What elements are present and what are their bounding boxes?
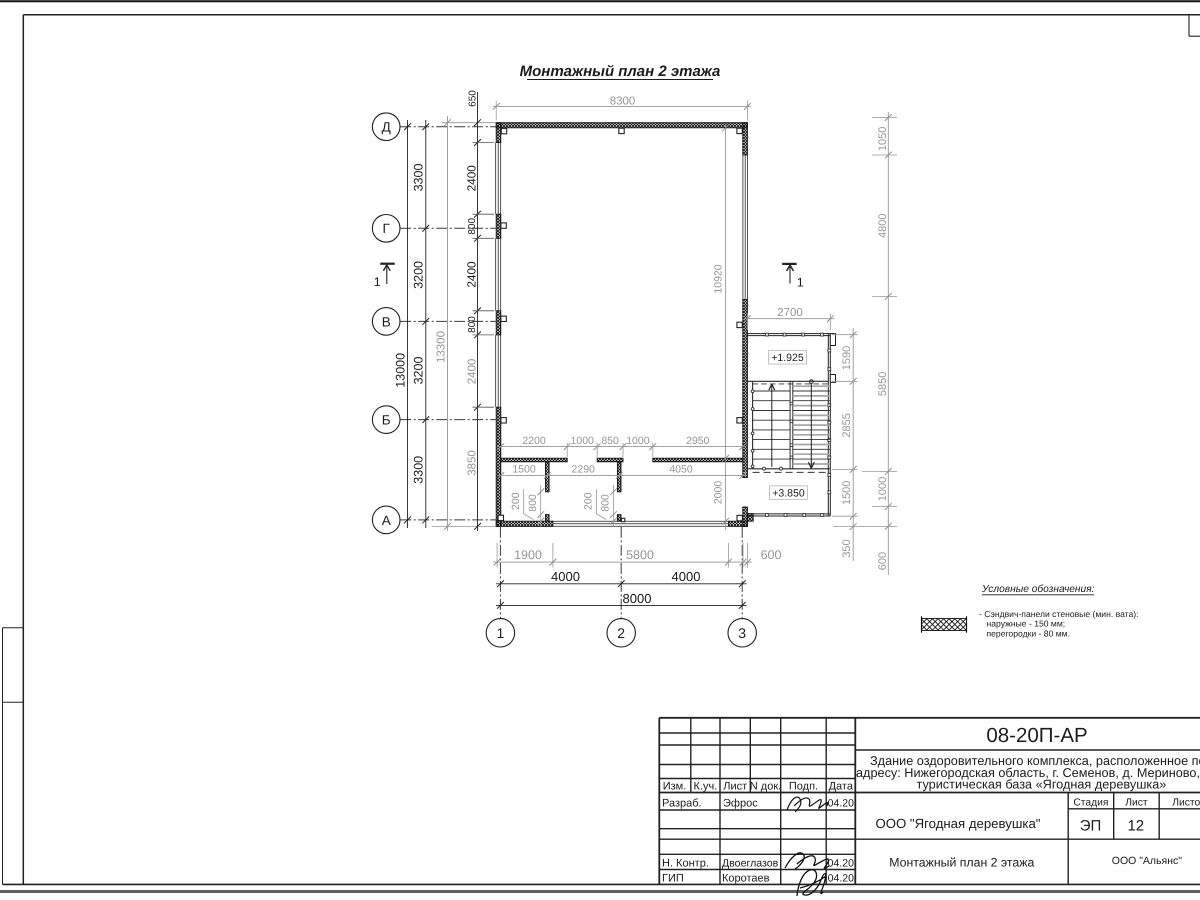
- svg-text:2200: 2200: [522, 435, 546, 447]
- svg-text:1000: 1000: [877, 477, 889, 501]
- svg-text:1050: 1050: [877, 127, 889, 151]
- svg-text:+3.850: +3.850: [772, 487, 805, 499]
- svg-text:08-20П-АР: 08-20П-АР: [986, 724, 1087, 747]
- svg-text:Разраб.: Разраб.: [662, 797, 702, 809]
- svg-text:200: 200: [510, 492, 522, 510]
- svg-text:5850: 5850: [877, 372, 889, 396]
- svg-text:N док.: N док.: [750, 781, 781, 793]
- svg-text:650: 650: [467, 90, 478, 107]
- svg-text:Н. Контр.: Н. Контр.: [662, 857, 709, 869]
- svg-text:3: 3: [738, 625, 746, 641]
- svg-text:800: 800: [467, 218, 478, 235]
- svg-text:2400: 2400: [466, 359, 478, 385]
- svg-text:+1.925: +1.925: [771, 352, 804, 364]
- svg-text:3850: 3850: [466, 450, 478, 476]
- svg-text:- Сэндвич-панели стеновые (мин: - Сэндвич-панели стеновые (мин. вата):: [979, 609, 1139, 619]
- svg-text:2400: 2400: [464, 261, 478, 288]
- svg-text:3200: 3200: [411, 357, 425, 385]
- svg-text:Изм.: Изм.: [663, 781, 687, 793]
- svg-text:Монтажный план 2 этажа: Монтажный план 2 этажа: [889, 855, 1034, 869]
- svg-text:3300: 3300: [411, 164, 425, 192]
- svg-text:Лист: Лист: [1125, 798, 1148, 809]
- svg-text:Лист: Лист: [723, 781, 747, 793]
- svg-text:1: 1: [374, 275, 381, 289]
- svg-text:800: 800: [467, 316, 478, 333]
- svg-text:2: 2: [617, 625, 625, 641]
- svg-text:600: 600: [761, 548, 782, 562]
- svg-text:1900: 1900: [514, 548, 542, 562]
- svg-text:1500: 1500: [512, 464, 536, 476]
- svg-text:200: 200: [583, 492, 595, 510]
- svg-text:3300: 3300: [411, 456, 425, 484]
- svg-text:туристическая база «Ягодная де: туристическая база «Ягодная деревушка»: [917, 777, 1167, 791]
- svg-text:4800: 4800: [877, 213, 889, 237]
- svg-text:Дата: Дата: [829, 781, 854, 793]
- svg-text:13300: 13300: [436, 331, 448, 363]
- svg-text:А: А: [382, 513, 391, 528]
- svg-text:2290: 2290: [572, 464, 596, 476]
- svg-text:600: 600: [877, 552, 889, 570]
- svg-text:2000: 2000: [712, 481, 724, 505]
- svg-text:04.20: 04.20: [828, 797, 854, 809]
- svg-text:1: 1: [797, 276, 804, 290]
- svg-text:10920: 10920: [712, 264, 724, 293]
- svg-text:8000: 8000: [623, 591, 652, 606]
- svg-text:1590: 1590: [841, 346, 853, 370]
- svg-text:350: 350: [841, 539, 853, 557]
- svg-text:12: 12: [1127, 817, 1144, 834]
- svg-text:наружные - 150 мм;: наружные - 150 мм;: [987, 619, 1066, 629]
- svg-text:800: 800: [600, 494, 612, 512]
- svg-text:Г: Г: [383, 221, 391, 236]
- svg-text:ЭП: ЭП: [1080, 817, 1102, 834]
- svg-text:Монтажный план 2 этажа: Монтажный план 2 этажа: [520, 63, 721, 80]
- svg-text:Б: Б: [382, 413, 391, 428]
- svg-text:2700: 2700: [777, 307, 803, 319]
- svg-text:1000: 1000: [571, 435, 595, 447]
- svg-text:ООО "Альянс": ООО "Альянс": [1112, 855, 1182, 867]
- svg-text:13000: 13000: [394, 353, 408, 388]
- svg-text:Листов: Листов: [1172, 798, 1200, 809]
- svg-text:ГИП: ГИП: [662, 873, 684, 885]
- svg-text:04.20: 04.20: [828, 857, 854, 869]
- svg-text:1: 1: [497, 625, 505, 641]
- svg-text:1000: 1000: [626, 435, 650, 447]
- svg-text:2400: 2400: [464, 165, 478, 192]
- svg-text:2855: 2855: [841, 413, 853, 437]
- svg-text:Коротаев: Коротаев: [722, 873, 770, 885]
- svg-text:8300: 8300: [610, 95, 636, 107]
- svg-text:Условные обозначения:: Условные обозначения:: [981, 584, 1095, 595]
- svg-text:К.уч.: К.уч.: [694, 781, 718, 793]
- svg-text:перегородки - 80 мм.: перегородки - 80 мм.: [987, 628, 1070, 638]
- svg-text:4000: 4000: [672, 569, 701, 584]
- svg-text:04.20: 04.20: [828, 873, 854, 885]
- svg-text:4000: 4000: [551, 569, 580, 584]
- svg-text:850: 850: [601, 435, 619, 447]
- svg-text:Д: Д: [382, 120, 391, 135]
- svg-text:4050: 4050: [669, 464, 693, 476]
- svg-text:Стадия: Стадия: [1073, 798, 1108, 809]
- svg-text:800: 800: [527, 494, 539, 512]
- svg-text:Двоеглазов: Двоеглазов: [722, 857, 779, 869]
- svg-text:5800: 5800: [626, 548, 654, 562]
- svg-text:Эфрос: Эфрос: [723, 797, 758, 809]
- svg-text:Подп.: Подп.: [789, 781, 818, 793]
- svg-text:В: В: [382, 314, 391, 329]
- svg-text:2950: 2950: [686, 435, 710, 447]
- svg-text:3200: 3200: [411, 261, 425, 289]
- svg-text:ООО "Ягодная деревушка": ООО "Ягодная деревушка": [876, 816, 1041, 831]
- svg-text:1500: 1500: [841, 481, 853, 505]
